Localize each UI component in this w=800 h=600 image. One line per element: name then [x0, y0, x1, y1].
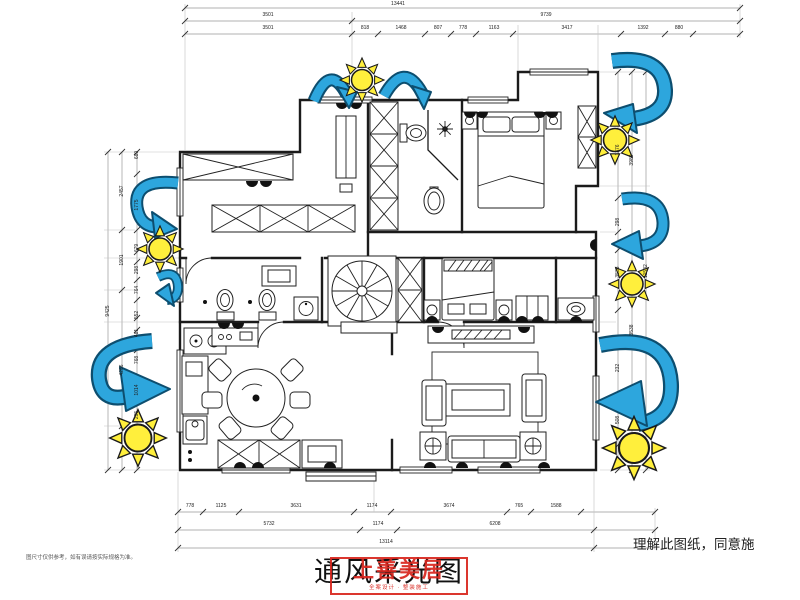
dim-label: 765	[515, 503, 523, 509]
dim-label: 818	[361, 25, 369, 31]
dim-label: 232	[615, 364, 621, 372]
dim-label: 9425	[105, 305, 111, 316]
dim-label: 3538	[615, 266, 621, 277]
floor-plan-drawing	[0, 0, 800, 600]
dim-label: 552	[134, 311, 140, 319]
side-table-icon	[262, 266, 296, 286]
dim-label: 295	[134, 411, 140, 419]
sun-icon	[137, 226, 183, 272]
dim-label: 4286	[119, 364, 125, 375]
dim-label: 298	[134, 266, 140, 274]
dim-label: 880	[675, 25, 683, 31]
dim-label: 1376	[615, 144, 621, 155]
dim-label: 1014	[134, 384, 140, 395]
disclaimer-note: 图尺寸仅供参考，如有误请按实际规格为准。	[26, 553, 136, 561]
dim-label: 2457	[119, 185, 125, 196]
toilet-icon	[203, 290, 318, 321]
dim-label: 3538	[629, 324, 635, 335]
dim-label: 481	[134, 329, 140, 337]
bed-icon	[462, 112, 561, 208]
dim-label: 13114	[379, 539, 393, 545]
dim-label: 3989	[629, 154, 635, 165]
dim-label: 3631	[290, 503, 301, 509]
dim-label: 9739	[540, 12, 551, 18]
dim-label: 764	[134, 286, 140, 294]
dim-label: 1468	[395, 25, 406, 31]
wind-arrow-icon	[137, 182, 178, 238]
entry-step	[306, 472, 376, 481]
dim-label: 3417	[561, 25, 572, 31]
dim-label: 778	[186, 503, 194, 509]
living-room-icon	[420, 326, 546, 462]
watermark-slogan: 全案设计 · 整装施工	[332, 583, 466, 591]
dim-label: 1901	[119, 254, 125, 265]
dim-label: 679	[134, 244, 140, 252]
company-watermark: 上善美居 全案设计 · 整装施工	[330, 557, 468, 595]
dim-label: 1174	[373, 521, 384, 527]
wind-arrow-icon	[99, 341, 170, 411]
spiral-stair-icon	[328, 256, 397, 333]
dim-label: 508	[615, 416, 621, 424]
dim-label: 1163	[489, 25, 500, 31]
dim-label: 3501	[262, 25, 273, 31]
approval-note: 理解此图纸，同意施	[633, 533, 755, 553]
dim-label: 3674	[443, 503, 454, 509]
dim-label: 807	[434, 25, 442, 31]
watermark-name: 上善美居	[332, 560, 466, 582]
dim-label: 298	[615, 218, 621, 226]
wind-arrow-icon	[612, 198, 663, 259]
dim-label: 1392	[637, 25, 648, 31]
dining-table-icon	[202, 357, 310, 441]
wind-arrow-icon	[156, 274, 178, 306]
dim-label: 3501	[262, 12, 273, 18]
dim-label: 5732	[263, 521, 274, 527]
dim-label: 680	[134, 151, 140, 159]
floor-plan	[177, 69, 599, 481]
dim-label: 13441	[391, 1, 405, 7]
floor-plan-canvas: 13441 3501 9739 3501 818 1468 807 778 11…	[0, 0, 800, 600]
dim-label: 768	[134, 356, 140, 364]
dim-label: 778	[459, 25, 467, 31]
desk-icon	[336, 116, 356, 192]
dim-label: 11582	[643, 264, 649, 278]
sun-icon	[603, 417, 666, 480]
dim-label: 1775	[134, 199, 140, 210]
bed-icon	[424, 258, 548, 320]
dim-label: 1588	[550, 503, 561, 509]
dim-label: 6208	[489, 521, 500, 527]
dim-label: 1174	[367, 503, 378, 509]
wind-arrow-icon	[596, 342, 671, 426]
sun-icon	[340, 58, 384, 102]
dim-label: 1125	[216, 503, 227, 509]
